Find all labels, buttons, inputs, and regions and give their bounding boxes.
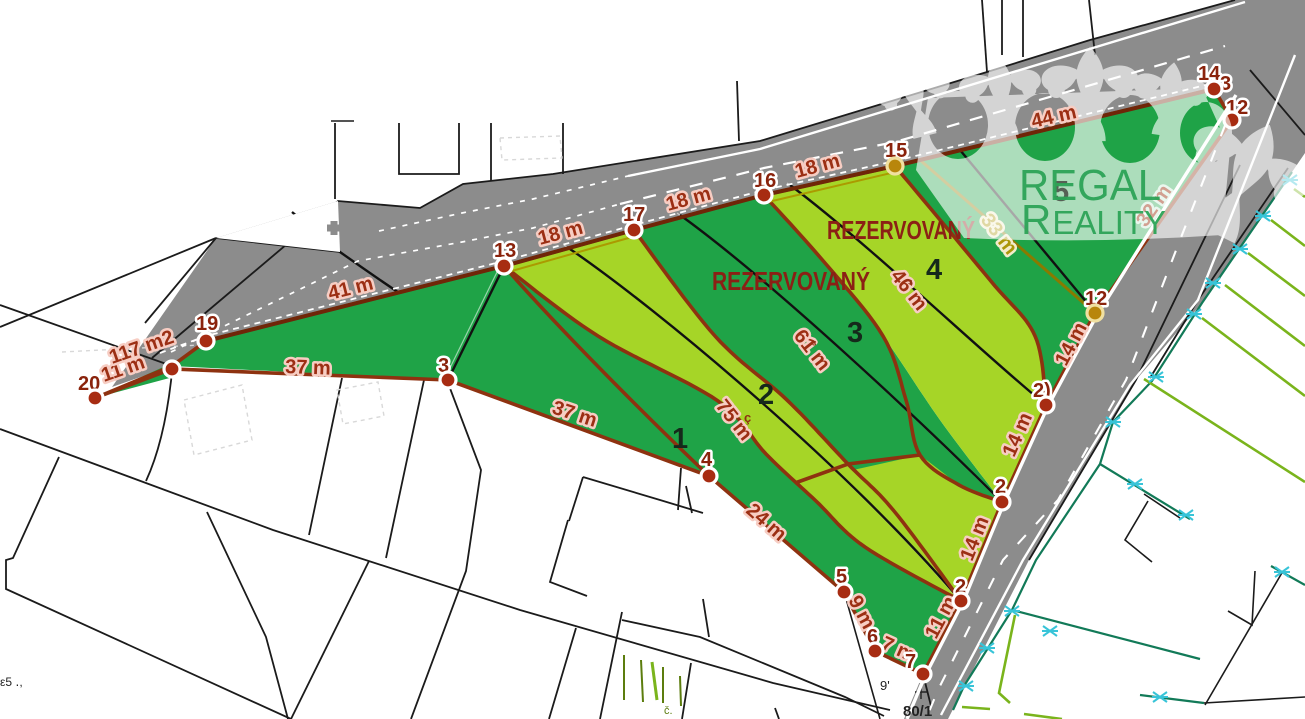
svg-text:REALITY: REALITY [1021, 196, 1166, 243]
svg-text:80/1: 80/1 [903, 703, 932, 719]
svg-text:37 m: 37 m [285, 356, 331, 380]
svg-text:³: ³ [908, 277, 913, 292]
svg-text:³: ³ [812, 338, 817, 353]
svg-text:9': 9' [880, 678, 890, 693]
svg-text:1: 1 [672, 423, 688, 455]
svg-text:ç: ç [744, 410, 751, 425]
svg-text:REZERVOVANÝ: REZERVOVANÝ [712, 266, 870, 296]
svg-text:4: 4 [926, 254, 942, 286]
svg-text:2: 2 [758, 379, 774, 411]
svg-text:3: 3 [847, 317, 863, 349]
svg-text:ε5 ․,: ε5 ․, [0, 675, 23, 689]
svg-text:č.: č. [664, 705, 673, 717]
